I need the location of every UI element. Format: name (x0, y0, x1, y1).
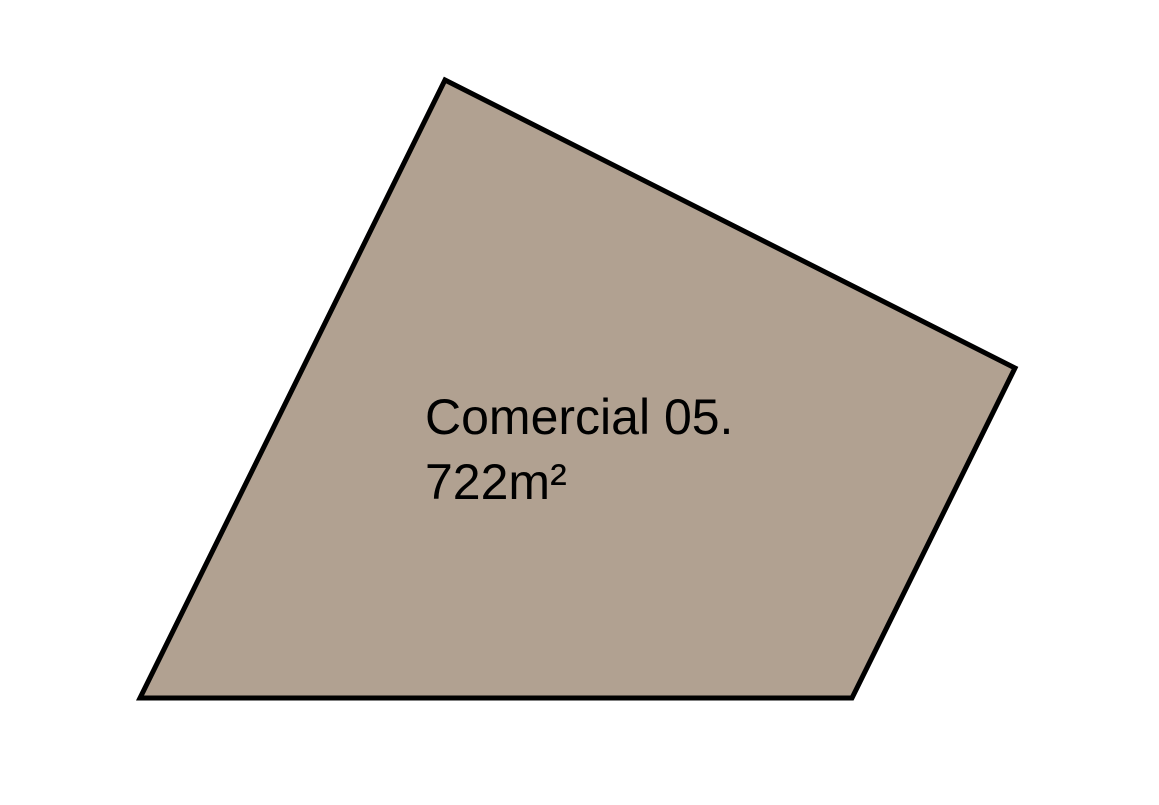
parcel-label-name: Comercial 05. (425, 389, 733, 445)
parcel-label-area: 722m² (425, 454, 567, 510)
parcel-plan-stage: Comercial 05. 722m² (0, 0, 1159, 805)
parcel-plan-canvas: Comercial 05. 722m² (0, 0, 1159, 805)
